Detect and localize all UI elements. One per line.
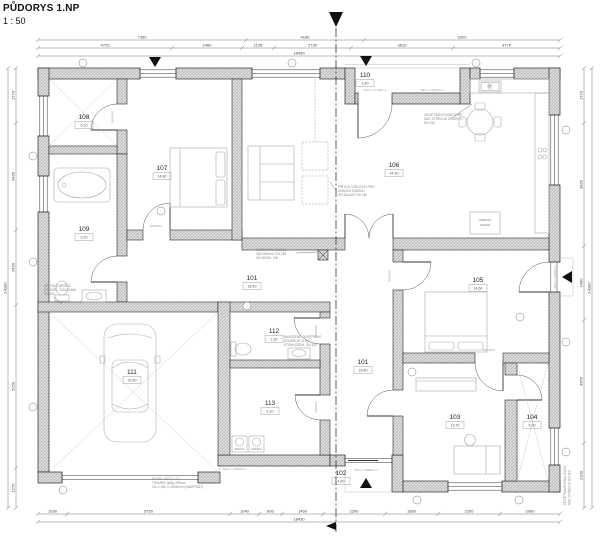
svg-text:14180: 14180	[587, 282, 592, 294]
note-sewer-vent: ODVĚTRÁNÍ KANALIZACE NAD STŘECHU DN 110	[562, 466, 572, 505]
desk-103	[454, 435, 500, 475]
dryer: SUŠIČKA	[249, 436, 264, 452]
door-bath-109	[91, 256, 117, 282]
room-label-101-west: 10118,40	[243, 275, 261, 290]
door-size-112: 700/1970	[314, 325, 318, 337]
floor-plan-sheet: PŮDORYS 1.NP 1 : 50 735041606920 4725246…	[0, 0, 600, 544]
room-label-113: 1136,10	[261, 400, 279, 415]
room-label-110: 1103,40	[356, 72, 374, 87]
svg-text:113: 113	[265, 400, 276, 407]
furniture: AMERICKÁ LEDNICE PRAČKA SUŠIČKA	[49, 65, 573, 493]
entry-marker-terrace	[562, 271, 572, 283]
fireplace-stove	[302, 79, 328, 204]
fridge: AMERICKÁ LEDNICE	[470, 212, 500, 234]
washbasin-112	[288, 348, 310, 359]
svg-text:1860: 1860	[407, 509, 417, 514]
fridge-label-1: AMERICKÁ	[479, 219, 492, 222]
svg-text:109: 109	[79, 226, 90, 233]
room-label-107: 10714,80	[153, 165, 171, 180]
svg-text:108: 108	[79, 114, 90, 121]
svg-text:NAD STŘECHU DN 110: NAD STŘECHU DN 110	[567, 470, 572, 505]
window-top-living	[252, 68, 320, 79]
window-left-bath	[38, 176, 49, 212]
section-arrow-bottom	[326, 522, 336, 530]
toilet-112	[231, 342, 251, 356]
svg-text:3950: 3950	[579, 376, 584, 386]
svg-text:18430: 18430	[293, 517, 305, 522]
svg-text:1460: 1460	[298, 509, 308, 514]
door-size-103: 800/1970	[483, 348, 495, 352]
svg-text:102: 102	[336, 470, 347, 477]
room-label-109: 1099,20	[75, 226, 93, 241]
svg-text:2090: 2090	[526, 509, 536, 514]
svg-text:5250: 5250	[11, 381, 16, 391]
svg-text:2460: 2460	[203, 43, 213, 48]
svg-text:3770: 3770	[502, 43, 512, 48]
bed-105	[425, 292, 487, 352]
svg-text:SCHIEDEL UNI: SCHIEDEL UNI	[256, 256, 278, 260]
svg-text:106: 106	[389, 162, 400, 169]
entry-marker-window	[149, 57, 161, 67]
svg-text:107: 107	[157, 165, 168, 172]
svg-text:DN 150: DN 150	[424, 121, 435, 125]
svg-text:14180: 14180	[3, 282, 8, 294]
note-garage-lintel: DETAIL VIZ D.1.1.2 TRÁMEK výšky 250mm 2x…	[152, 477, 203, 489]
svg-text:1270: 1270	[11, 483, 16, 493]
wardrobe-cross-104	[517, 363, 548, 481]
svg-text:110: 110	[360, 72, 371, 79]
room-label-106: 10644,30	[385, 162, 403, 177]
svg-text:2200: 2200	[465, 509, 475, 514]
door-size-107: 800/1970	[150, 224, 162, 228]
svg-text:3960: 3960	[579, 179, 584, 189]
dimensions-top: 735041606920 472524601135273036103770 18…	[36, 35, 562, 59]
svg-text:3610: 3610	[398, 43, 408, 48]
entry-marker-south	[360, 478, 372, 488]
svg-text:14,80: 14,80	[158, 175, 167, 179]
room-label-111: 11122,60	[123, 369, 141, 384]
svg-text:105: 105	[473, 277, 484, 284]
svg-text:101: 101	[358, 359, 369, 366]
chimney-body	[318, 250, 328, 260]
axis-bubbles	[29, 59, 570, 504]
car	[100, 324, 160, 442]
svg-text:2400: 2400	[579, 278, 584, 288]
room-labels: 10118,40 10118,40 1024,60 10313,70 1044,…	[75, 72, 541, 485]
svg-text:4,60: 4,60	[338, 480, 345, 484]
svg-text:INSTALACE DN 150: INSTALACE DN 150	[338, 193, 367, 197]
svg-text:101: 101	[247, 275, 258, 282]
window-right-living	[549, 115, 560, 185]
svg-text:2,30: 2,30	[271, 338, 278, 342]
svg-text:1770: 1770	[11, 90, 16, 100]
door-hall-103	[367, 390, 393, 416]
note-stove-air: PŘÍVOD VZDUCHU PRO KRBOVÁ KAMNA / INSTAL…	[330, 182, 375, 197]
room-label-112: 1122,30	[265, 328, 283, 343]
svg-text:2100: 2100	[579, 470, 584, 480]
svg-text:1770: 1770	[579, 90, 584, 100]
svg-text:18,40: 18,40	[248, 285, 257, 289]
window-top-bedroom	[140, 68, 176, 79]
room-label-102: 1024,60	[332, 470, 350, 485]
svg-text:9,20: 9,20	[81, 236, 88, 240]
room-label-108: 1085,10	[75, 114, 93, 129]
sofa-living	[248, 146, 294, 200]
kitchen-counter	[470, 79, 549, 233]
door-size-108: 800/1970	[111, 111, 115, 123]
door-size-105: 900/1970	[388, 270, 392, 282]
svg-text:13,70: 13,70	[451, 424, 460, 428]
entry-door	[345, 455, 392, 466]
svg-text:1030: 1030	[48, 509, 58, 514]
washer-label: PRAČKA	[235, 448, 245, 451]
svg-text:18,40: 18,40	[359, 369, 368, 373]
room-label-101-south: 10118,40	[354, 359, 372, 374]
svg-text:4160: 4160	[301, 35, 311, 40]
svg-text:3460: 3460	[11, 171, 16, 181]
svg-text:112: 112	[269, 328, 280, 335]
room-label-105: 10514,60	[469, 277, 487, 292]
svg-text:800: 800	[267, 509, 274, 514]
door-size-113: 700/1970	[314, 401, 318, 413]
door-porch-110	[358, 104, 392, 138]
door-closet-104	[517, 375, 542, 400]
lintel-terrace-door: S4/4, L=2500mm	[553, 265, 557, 288]
window-bottom-study	[448, 481, 502, 492]
door-bedroom-105	[403, 262, 431, 290]
markers	[29, 12, 572, 532]
room-label-104: 1044,20	[523, 414, 541, 429]
section-arrow-top	[329, 12, 343, 27]
window-top-kitchen	[480, 68, 514, 79]
porch-slabs	[345, 65, 573, 493]
svg-text:14,60: 14,60	[474, 287, 483, 291]
door-study-103	[475, 363, 503, 391]
doors	[91, 104, 542, 420]
lintel-entry-door: S4/4, L=2500mm	[355, 468, 378, 472]
dimensions-left: 17703460243052501270 14180	[3, 66, 19, 510]
svg-text:5,10: 5,10	[81, 124, 88, 128]
svg-text:4,20: 4,20	[529, 424, 536, 428]
svg-text:2430: 2430	[11, 262, 16, 272]
svg-text:7350: 7350	[138, 35, 148, 40]
washer: PRAČKA	[232, 436, 247, 452]
svg-text:111: 111	[127, 369, 137, 376]
dimensions-bottom: 10305750104080014602200186022002090 1843…	[36, 509, 562, 525]
room-label-103: 10313,70	[446, 414, 464, 429]
garage-cross	[49, 312, 218, 472]
svg-text:DN 100: DN 100	[44, 292, 55, 296]
lintel-kitchen-window: S4/4, L=2600mm	[421, 88, 444, 92]
svg-text:2730: 2730	[308, 43, 318, 48]
svg-text:5750: 5750	[144, 509, 154, 514]
svg-text:1135: 1135	[254, 43, 263, 48]
lintel-porch-door: S4/4, L=1700mm	[364, 88, 387, 92]
svg-text:3,40: 3,40	[362, 82, 369, 86]
svg-text:104: 104	[527, 414, 538, 421]
window-right-closet	[549, 428, 560, 465]
svg-text:103: 103	[450, 414, 461, 421]
window-left-closet	[38, 96, 49, 136]
svg-text:1040: 1040	[240, 509, 250, 514]
bed-107	[170, 148, 227, 207]
fridge-label-2: LEDNICE	[480, 224, 491, 227]
lintel-garage-rear: 2x S4/3, L=1500mm	[219, 467, 246, 471]
svg-text:18430: 18430	[293, 51, 305, 56]
double-door-living	[345, 214, 393, 238]
svg-text:ODVĚTRÁNÍ KANALIZACE: ODVĚTRÁNÍ KANALIZACE	[562, 466, 567, 505]
svg-text:6,10: 6,10	[267, 410, 274, 414]
wardrobe-cross-108	[49, 79, 117, 146]
washbasin-109	[82, 290, 106, 302]
dimensions-right: 17703960240039502100 14180	[579, 66, 595, 510]
dryer-label: SUŠIČKA	[251, 448, 262, 451]
svg-text:PODHLEDEM, DN 100: PODHLEDEM, DN 100	[284, 343, 317, 347]
note-hood: ODVĚTRÁNÍ DIGESTOŘE NAD STŘECHU OBJEKTU …	[424, 104, 472, 125]
svg-text:2200: 2200	[350, 509, 360, 514]
sofa-103	[416, 378, 476, 391]
svg-text:4725: 4725	[101, 43, 111, 48]
svg-text:44,30: 44,30	[390, 172, 399, 176]
svg-text:2xL č.180, L=5000mm (NADPRAŽÍ): 2xL č.180, L=5000mm (NADPRAŽÍ)	[152, 484, 203, 489]
svg-text:6920: 6920	[458, 35, 468, 40]
bathtub	[54, 168, 110, 202]
floor-plan-drawing: 735041606920 472524601135273036103770 18…	[0, 0, 600, 544]
svg-text:22,60: 22,60	[128, 379, 137, 383]
